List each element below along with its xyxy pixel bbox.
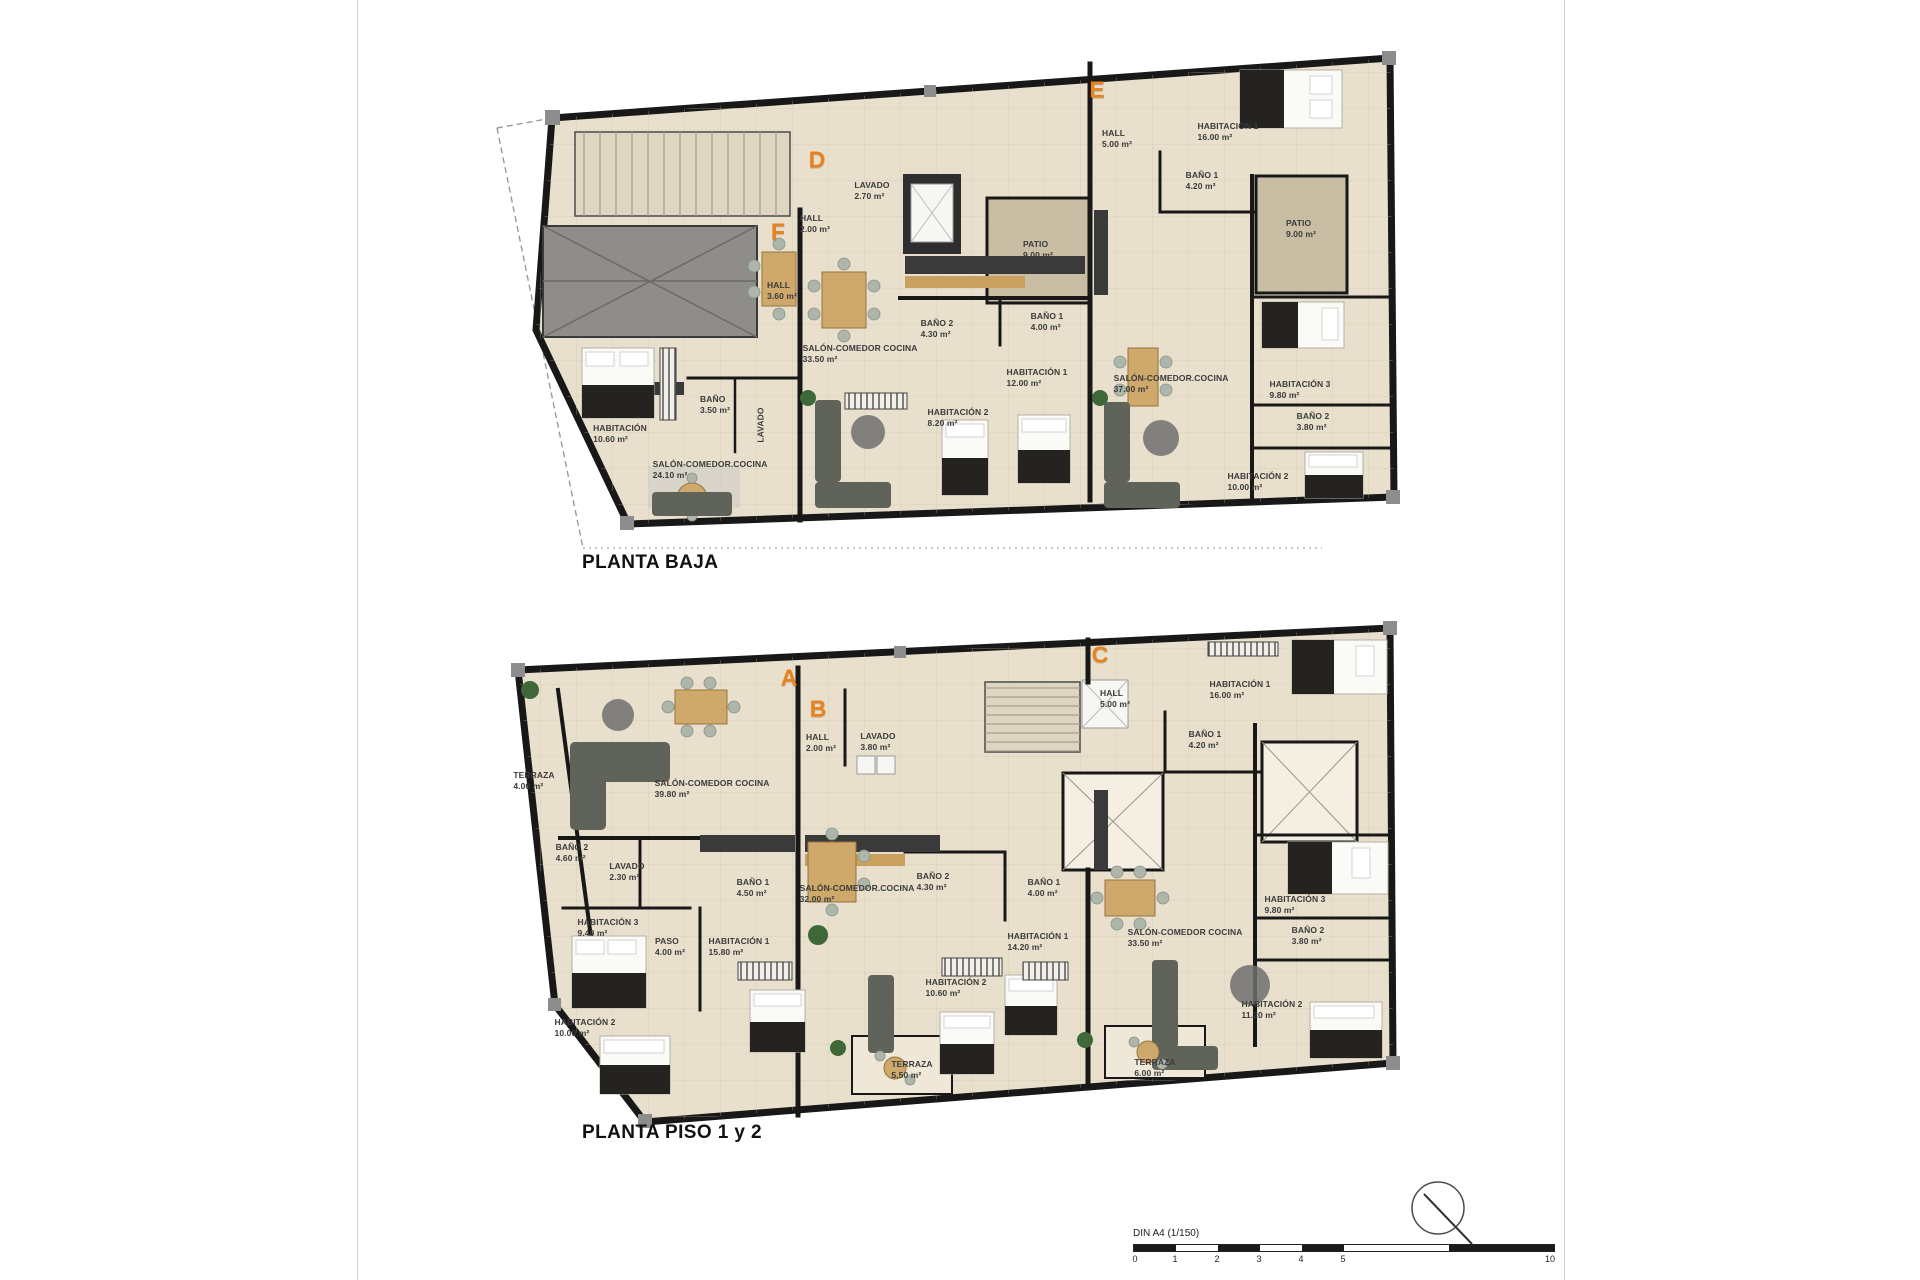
- room-label: PASO4.00 m²: [655, 936, 685, 958]
- room-name: HALL: [1102, 128, 1132, 139]
- room-label: HALL5.00 m²: [1102, 128, 1132, 150]
- bed-icon: [1018, 415, 1070, 483]
- rug-icon: [851, 415, 885, 449]
- room-name: BAÑO 1: [1189, 729, 1222, 740]
- room-name: SALÓN-COMEDOR.COCINA: [800, 883, 915, 894]
- stairs-icon: [575, 132, 790, 216]
- closet-icon: [660, 348, 676, 420]
- room-area: 37.00 m²: [1114, 384, 1229, 395]
- room-label: HALL3.60 m²: [767, 280, 797, 302]
- room-label: BAÑO 14.00 m²: [1028, 877, 1061, 899]
- room-name: HABITACIÓN 1: [708, 936, 769, 947]
- room-name: BAÑO 1: [1028, 877, 1061, 888]
- room-area: 4.30 m²: [917, 882, 950, 893]
- room-name: HALL: [800, 213, 830, 224]
- room-area: 2.30 m²: [609, 872, 644, 883]
- scale-tick: 10: [1545, 1254, 1555, 1264]
- room-area: 24.10 m²: [653, 470, 768, 481]
- room-area: 9.80 m²: [1269, 390, 1330, 401]
- room-label: BAÑO 14.50 m²: [737, 877, 770, 899]
- room-area: 4.30 m²: [921, 329, 954, 340]
- room-label: BAÑO3.50 m²: [700, 394, 730, 416]
- room-name: BAÑO 2: [917, 871, 950, 882]
- closet-icon: [1023, 962, 1068, 980]
- room-label: BAÑO 24.30 m²: [917, 871, 950, 893]
- unit-letter-D: D: [809, 147, 826, 174]
- room-area: 3.80 m²: [860, 742, 895, 753]
- room-area: 4.00 m²: [1028, 888, 1061, 899]
- room-name: HALL: [1100, 688, 1130, 699]
- room-name: PATIO: [1023, 239, 1053, 250]
- bed-icon: [940, 1012, 994, 1074]
- room-area: 5.50 m²: [891, 1070, 932, 1081]
- room-name: BAÑO 1: [1031, 311, 1064, 322]
- bed-icon: [750, 990, 805, 1052]
- plant-icon: [808, 925, 828, 945]
- room-label: HALL2.00 m²: [806, 732, 836, 754]
- lightwell-area: [1262, 742, 1357, 842]
- rug-icon: [602, 699, 634, 731]
- room-name: SALÓN-COMEDOR.COCINA: [1114, 373, 1229, 384]
- room-area: 4.20 m²: [1186, 181, 1219, 192]
- room-area: 6.00 m²: [1134, 1068, 1175, 1079]
- room-area: 10.00 m²: [554, 1028, 615, 1039]
- room-area: 3.80 m²: [1292, 936, 1325, 947]
- bed-icon: [1305, 452, 1363, 498]
- room-name: BAÑO 2: [1292, 925, 1325, 936]
- room-name: HABITACIÓN: [593, 423, 647, 434]
- room-area: 8.20 m²: [927, 418, 988, 429]
- room-label: HABITACIÓN 211.20 m²: [1241, 999, 1302, 1021]
- room-name: BAÑO 1: [1186, 170, 1219, 181]
- room-name: LAVADO: [609, 861, 644, 872]
- room-area: 4.00 m²: [655, 947, 685, 958]
- scale-ticks: 0 1 2 3 4 5 10: [1133, 1254, 1555, 1266]
- room-label: BAÑO 14.00 m²: [1031, 311, 1064, 333]
- room-area: 3.50 m²: [700, 405, 730, 416]
- rug-icon: [1143, 420, 1179, 456]
- room-label: HABITACIÓN 210.00 m²: [1227, 471, 1288, 493]
- room-area: 2.00 m²: [800, 224, 830, 235]
- room-name: LAVADO: [854, 180, 889, 191]
- room-area: 33.50 m²: [803, 354, 918, 365]
- scale-tick: 0: [1132, 1254, 1137, 1264]
- room-label: HABITACIÓN 116.00 m²: [1209, 679, 1270, 701]
- unit-letter-B: B: [810, 696, 827, 723]
- room-label: HALL2.00 m²: [800, 213, 830, 235]
- room-area: 10.60 m²: [925, 988, 986, 999]
- room-area: 9.00 m²: [1023, 250, 1053, 261]
- room-area: 2.70 m²: [854, 191, 889, 202]
- room-name: HABITACIÓN 3: [1264, 894, 1325, 905]
- bed-icon: [1292, 640, 1387, 694]
- room-label: SALÓN-COMEDOR COCINA39.80 m²: [655, 778, 770, 800]
- room-name: HABITACIÓN 1: [1209, 679, 1270, 690]
- scale-tick: 5: [1340, 1254, 1345, 1264]
- room-name: LAVADO: [755, 407, 766, 442]
- room-label: TERRAZA6.00 m²: [1134, 1057, 1175, 1079]
- bed-icon: [942, 420, 988, 495]
- room-label: SALÓN-COMEDOR.COCINA32.00 m²: [800, 883, 915, 905]
- room-label: HABITACIÓN 115.80 m²: [708, 936, 769, 958]
- room-label: HABITACIÓN 210.00 m²: [554, 1017, 615, 1039]
- unit-letter-E: E: [1089, 77, 1104, 104]
- room-name: SALÓN-COMEDOR COCINA: [655, 778, 770, 789]
- room-area: 4.60 m²: [556, 853, 589, 864]
- room-name: HABITACIÓN 2: [554, 1017, 615, 1028]
- room-area: 4.00 m²: [513, 781, 554, 792]
- roof-block: [543, 226, 757, 337]
- scale-tick: 1: [1172, 1254, 1177, 1264]
- room-area: 33.50 m²: [1128, 938, 1243, 949]
- room-label: TERRAZA4.00 m²: [513, 770, 554, 792]
- scale-bar: DIN A4 (1/150) 0 1 2 3 4 5 10: [1133, 1228, 1555, 1266]
- room-name: SALÓN-COMEDOR COCINA: [1128, 927, 1243, 938]
- room-label: HABITACIÓN 39.40 m²: [577, 917, 638, 939]
- drawing-sheet: LAVADO2.70 m²HALL2.00 m²HALL3.60 m²BAÑO3…: [0, 0, 1920, 1280]
- room-name: HABITACIÓN 1: [1197, 121, 1258, 132]
- room-name: BAÑO 2: [1297, 411, 1330, 422]
- room-label: BAÑO 14.20 m²: [1189, 729, 1222, 751]
- room-label: HABITACIÓN 28.20 m²: [927, 407, 988, 429]
- plot-boundary-dashed: [497, 118, 552, 128]
- room-area: 15.80 m²: [708, 947, 769, 958]
- bed-icon: [1262, 302, 1344, 348]
- room-area: 4.50 m²: [737, 888, 770, 899]
- room-name: HABITACIÓN 3: [1269, 379, 1330, 390]
- room-name: HABITACIÓN 2: [1241, 999, 1302, 1010]
- bed-icon: [572, 936, 646, 1008]
- room-area: 14.20 m²: [1007, 942, 1068, 953]
- room-label: HABITACIÓN 210.60 m²: [925, 977, 986, 999]
- room-label: SALÓN-COMEDOR.COCINA24.10 m²: [653, 459, 768, 481]
- room-name: BAÑO 2: [556, 842, 589, 853]
- scale-tick: 3: [1256, 1254, 1261, 1264]
- room-name: HALL: [806, 732, 836, 743]
- scale-label: DIN A4 (1/150): [1133, 1228, 1555, 1239]
- scale-bar-graphic: [1133, 1244, 1555, 1252]
- plant-icon: [800, 390, 816, 406]
- room-name: HABITACIÓN 3: [577, 917, 638, 928]
- room-label: LAVADO2.70 m²: [854, 180, 889, 202]
- room-label: LAVADO2.30 m²: [609, 861, 644, 883]
- room-area: 2.00 m²: [806, 743, 836, 754]
- room-label: LAVADO3.80 m²: [860, 731, 895, 753]
- stairs-icon: [985, 682, 1080, 752]
- room-label: BAÑO 24.60 m²: [556, 842, 589, 864]
- room-name: HABITACIÓN 2: [927, 407, 988, 418]
- room-name: PATIO: [1286, 218, 1316, 229]
- room-area: 10.60 m²: [593, 434, 647, 445]
- bed-icon: [582, 348, 654, 418]
- room-name: SALÓN-COMEDOR.COCINA: [653, 459, 768, 470]
- room-label: SALÓN-COMEDOR COCINA33.50 m²: [803, 343, 918, 365]
- room-name: TERRAZA: [891, 1059, 932, 1070]
- room-label: HABITACIÓN 112.00 m²: [1006, 367, 1067, 389]
- room-name: TERRAZA: [513, 770, 554, 781]
- sofa-icon: [868, 975, 894, 1053]
- room-name: BAÑO: [700, 394, 730, 405]
- elevator-icon: [903, 174, 961, 254]
- room-area: 4.00 m²: [1031, 322, 1064, 333]
- room-label: SALÓN-COMEDOR.COCINA37.00 m²: [1114, 373, 1229, 395]
- room-label: BAÑO 23.80 m²: [1297, 411, 1330, 433]
- plan-title-planta-piso: PLANTA PISO 1 y 2: [582, 1122, 762, 1144]
- room-name: HABITACIÓN 2: [925, 977, 986, 988]
- lightwell-area: [1063, 773, 1163, 870]
- room-label: LAVADO: [755, 407, 766, 442]
- unit-letter-F: F: [771, 219, 785, 246]
- bed-icon: [1005, 975, 1057, 1035]
- room-label: TERRAZA5.50 m²: [891, 1059, 932, 1081]
- closet-icon: [738, 962, 792, 980]
- bed-icon: [1240, 70, 1342, 128]
- room-area: 12.00 m²: [1006, 378, 1067, 389]
- room-label: BAÑO 14.20 m²: [1186, 170, 1219, 192]
- unit-letter-A: A: [781, 665, 798, 692]
- room-area: 39.80 m²: [655, 789, 770, 800]
- room-name: BAÑO 2: [921, 318, 954, 329]
- closet-icon: [845, 393, 907, 409]
- north-arrow-icon: [1406, 1178, 1478, 1250]
- room-area: 16.00 m²: [1197, 132, 1258, 143]
- room-label: BAÑO 23.80 m²: [1292, 925, 1325, 947]
- room-name: HABITACIÓN 2: [1227, 471, 1288, 482]
- closet-icon: [942, 958, 1002, 976]
- bed-icon: [1288, 842, 1388, 894]
- room-area: 9.40 m²: [577, 928, 638, 939]
- room-label: HABITACIÓN 39.80 m²: [1269, 379, 1330, 401]
- room-label: HABITACIÓN10.60 m²: [593, 423, 647, 445]
- room-name: SALÓN-COMEDOR COCINA: [803, 343, 918, 354]
- plant-icon: [830, 1040, 846, 1056]
- room-label: HALL5.00 m²: [1100, 688, 1130, 710]
- room-label: HABITACIÓN 116.00 m²: [1197, 121, 1258, 143]
- plant-icon: [1092, 390, 1108, 406]
- room-area: 10.00 m²: [1227, 482, 1288, 493]
- room-area: 4.20 m²: [1189, 740, 1222, 751]
- scale-tick: 4: [1298, 1254, 1303, 1264]
- room-name: TERRAZA: [1134, 1057, 1175, 1068]
- sofa-icon: [652, 492, 732, 516]
- unit-letter-C: C: [1092, 642, 1109, 669]
- room-name: LAVADO: [860, 731, 895, 742]
- closet-icon: [1208, 642, 1278, 656]
- room-label: BAÑO 24.30 m²: [921, 318, 954, 340]
- plant-icon: [1077, 1032, 1093, 1048]
- room-area: 11.20 m²: [1241, 1010, 1302, 1021]
- room-area: 16.00 m²: [1209, 690, 1270, 701]
- room-area: 3.80 m²: [1297, 422, 1330, 433]
- room-area: 9.00 m²: [1286, 229, 1316, 240]
- room-area: 5.00 m²: [1100, 699, 1130, 710]
- room-area: 32.00 m²: [800, 894, 915, 905]
- floorplan-canvas: [0, 0, 1920, 1280]
- room-name: PASO: [655, 936, 685, 947]
- room-label: HABITACIÓN 114.20 m²: [1007, 931, 1068, 953]
- room-label: PATIO9.00 m²: [1286, 218, 1316, 240]
- room-area: 9.80 m²: [1264, 905, 1325, 916]
- bed-icon: [1310, 1002, 1382, 1058]
- plant-icon: [521, 681, 539, 699]
- room-label: HABITACIÓN 39.80 m²: [1264, 894, 1325, 916]
- room-area: 3.60 m²: [767, 291, 797, 302]
- room-name: HABITACIÓN 1: [1006, 367, 1067, 378]
- plan-title-planta-baja: PLANTA BAJA: [582, 552, 718, 574]
- room-name: BAÑO 1: [737, 877, 770, 888]
- room-name: HALL: [767, 280, 797, 291]
- bed-icon: [600, 1036, 670, 1094]
- room-label: SALÓN-COMEDOR COCINA33.50 m²: [1128, 927, 1243, 949]
- scale-tick: 2: [1214, 1254, 1219, 1264]
- room-name: HABITACIÓN 1: [1007, 931, 1068, 942]
- room-label: PATIO9.00 m²: [1023, 239, 1053, 261]
- room-area: 5.00 m²: [1102, 139, 1132, 150]
